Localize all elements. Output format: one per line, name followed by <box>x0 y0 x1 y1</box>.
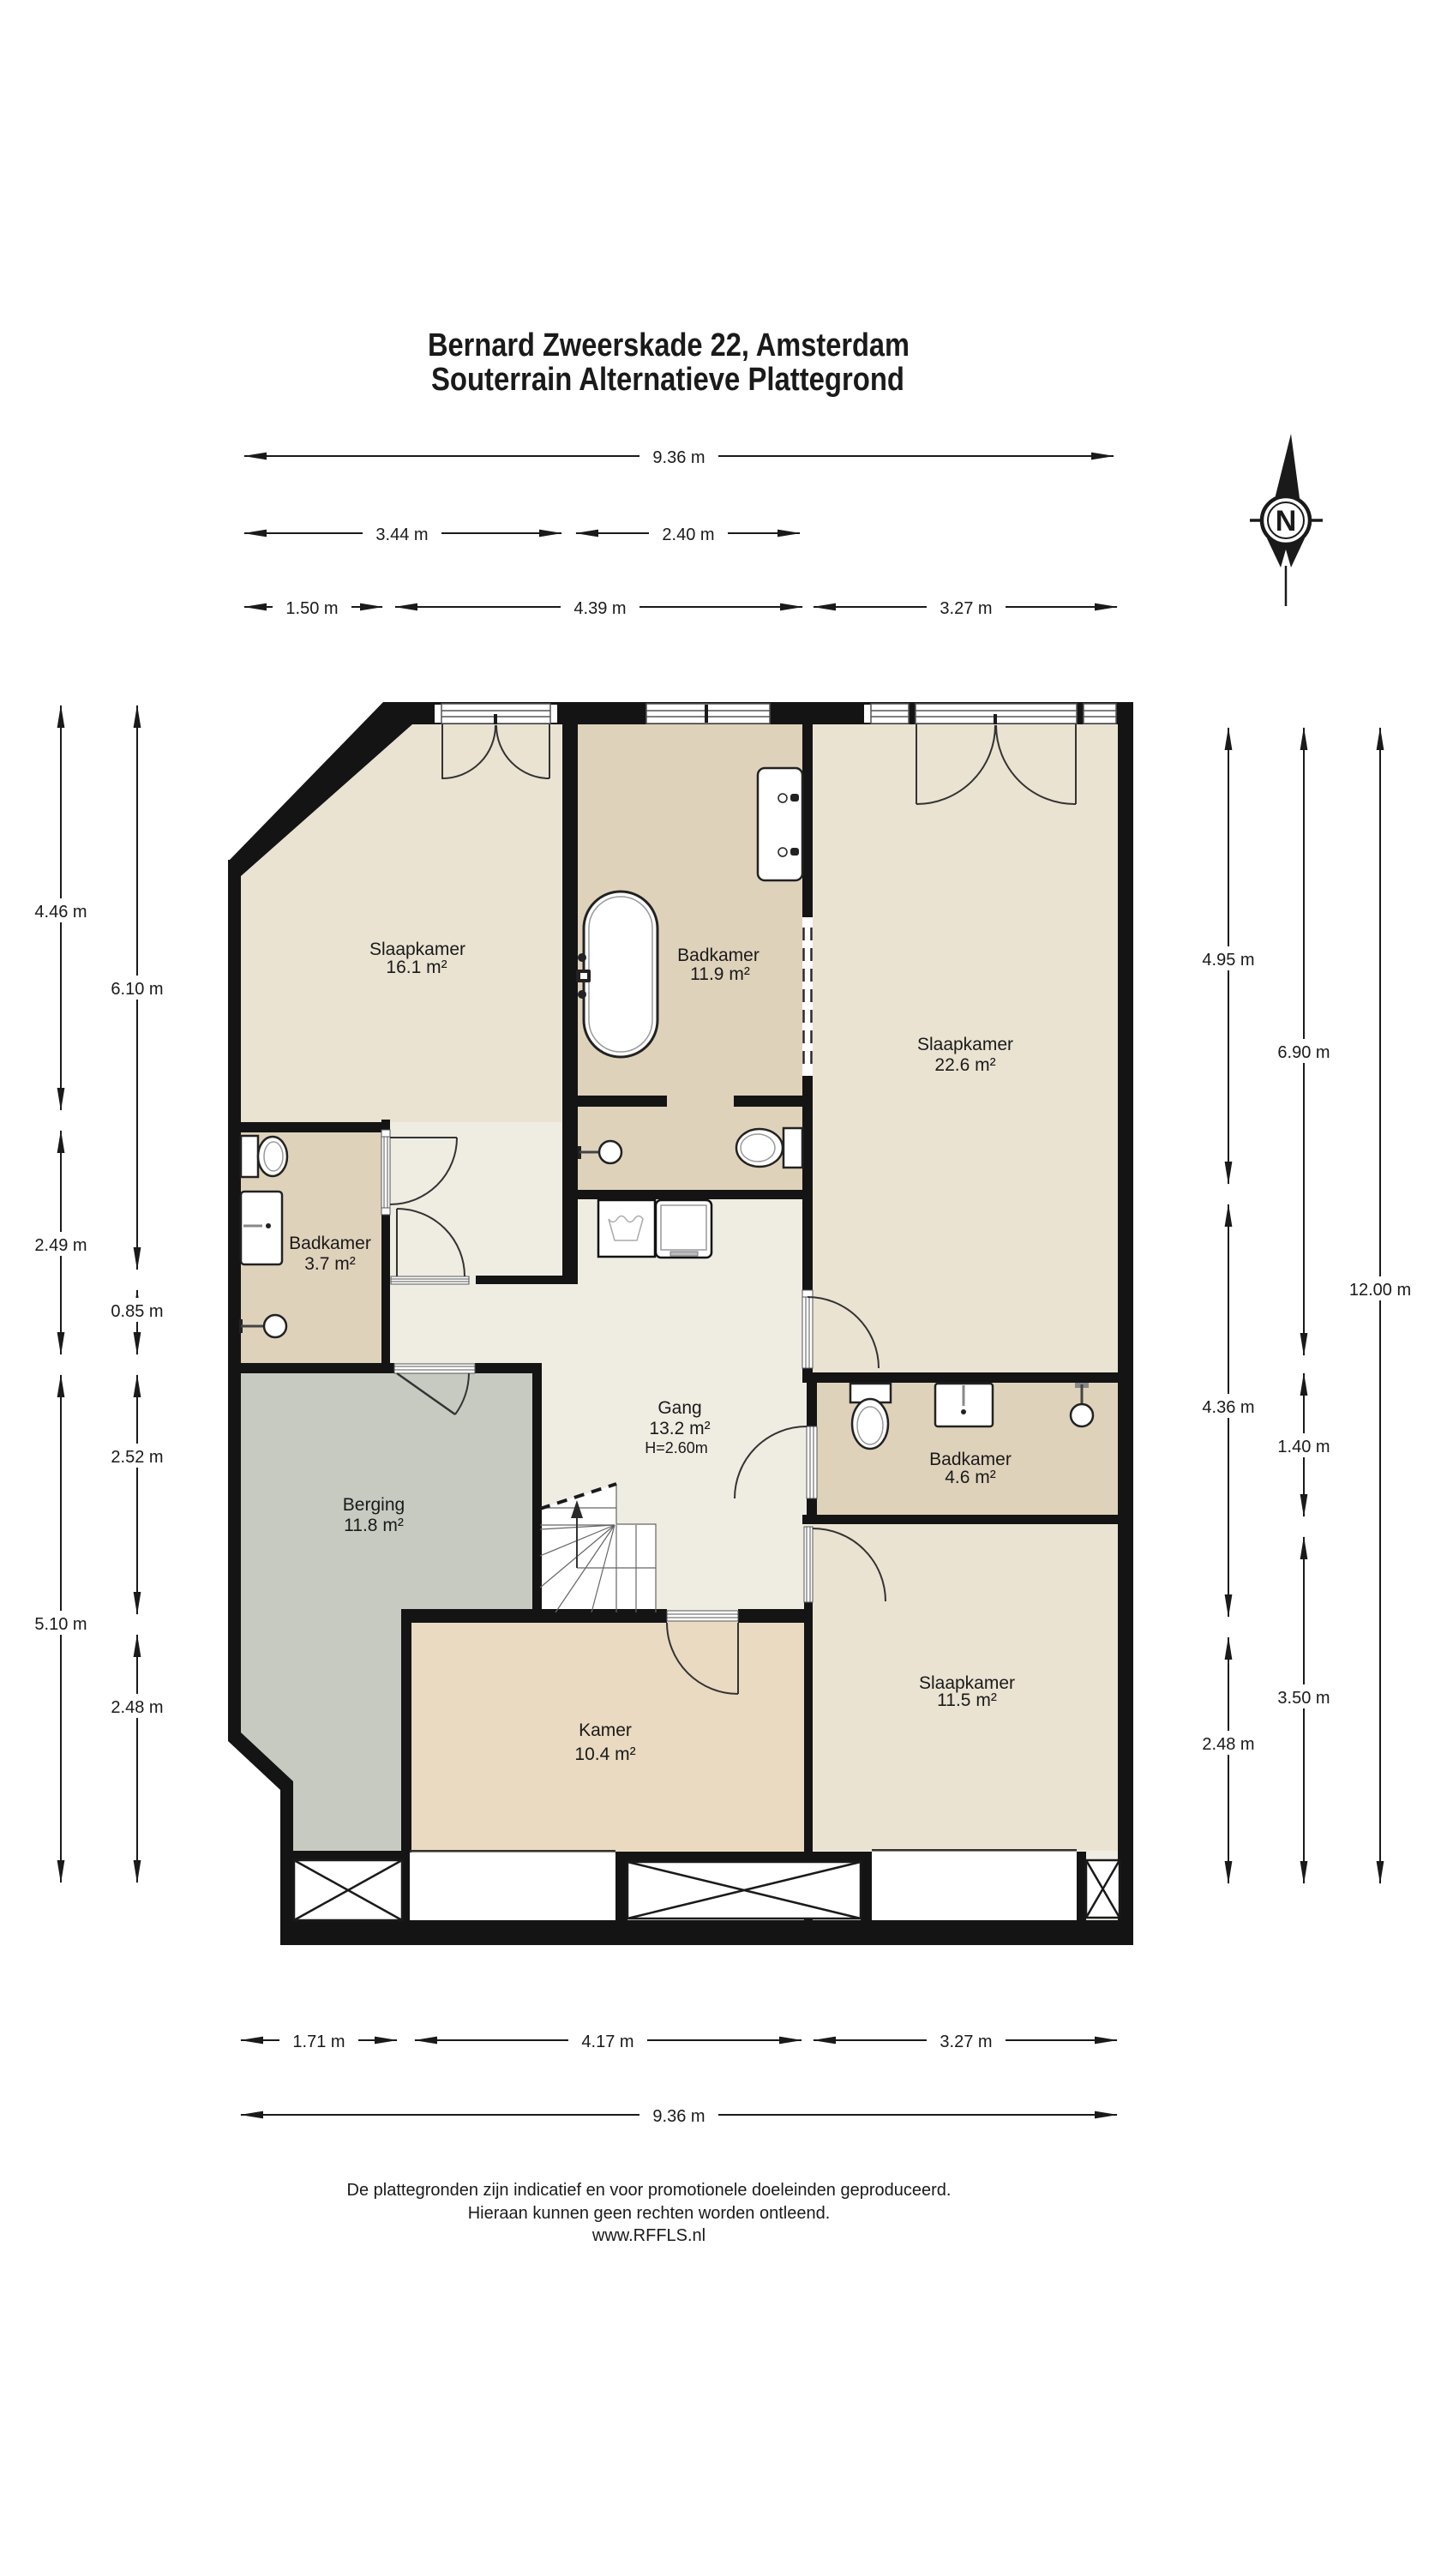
svg-text:2.40 m: 2.40 m <box>662 525 714 544</box>
svg-text:Bernard Zweerskade 22, Amsterd: Bernard Zweerskade 22, Amsterdam <box>428 327 910 363</box>
svg-text:11.9 m²: 11.9 m² <box>690 964 750 984</box>
svg-text:4.6 m²: 4.6 m² <box>945 1468 996 1487</box>
svg-text:1.40 m: 1.40 m <box>1277 1438 1330 1456</box>
svg-text:3.44 m: 3.44 m <box>375 525 428 544</box>
svg-text:De plattegronden zijn indicati: De plattegronden zijn indicatief en voor… <box>347 2181 952 2200</box>
svg-text:Badkamer: Badkamer <box>677 946 760 965</box>
svg-text:2.48 m: 2.48 m <box>111 1698 163 1717</box>
svg-text:www.RFFLS.nl: www.RFFLS.nl <box>591 2226 705 2245</box>
svg-text:10.4 m²: 10.4 m² <box>574 1744 635 1764</box>
svg-text:5.10 m: 5.10 m <box>34 1615 87 1634</box>
svg-text:Kamer: Kamer <box>579 1720 632 1740</box>
svg-text:2.48 m: 2.48 m <box>1202 1735 1254 1754</box>
svg-text:3.27 m: 3.27 m <box>940 599 992 618</box>
svg-text:9.36 m: 9.36 m <box>652 2107 705 2126</box>
svg-text:1.71 m: 1.71 m <box>292 2033 345 2051</box>
svg-text:Badkamer: Badkamer <box>289 1234 371 1253</box>
svg-text:4.39 m: 4.39 m <box>573 599 626 618</box>
svg-text:6.10 m: 6.10 m <box>111 980 163 999</box>
svg-text:4.95 m: 4.95 m <box>1202 951 1254 970</box>
svg-text:Slaapkamer: Slaapkamer <box>369 940 465 959</box>
svg-text:12.00 m: 12.00 m <box>1349 1281 1411 1300</box>
svg-text:22.6 m²: 22.6 m² <box>934 1055 995 1075</box>
svg-text:1.50 m: 1.50 m <box>285 599 338 618</box>
svg-text:H=2.60m: H=2.60m <box>645 1439 708 1456</box>
svg-text:16.1 m²: 16.1 m² <box>386 958 447 977</box>
svg-text:6.90 m: 6.90 m <box>1277 1043 1330 1062</box>
svg-text:4.36 m: 4.36 m <box>1202 1398 1254 1417</box>
svg-text:2.49 m: 2.49 m <box>34 1236 87 1255</box>
svg-text:3.7 m²: 3.7 m² <box>304 1254 356 1274</box>
svg-text:Gang: Gang <box>657 1398 701 1418</box>
svg-text:0.85 m: 0.85 m <box>111 1302 163 1321</box>
svg-text:4.46 m: 4.46 m <box>34 903 87 922</box>
svg-text:3.50 m: 3.50 m <box>1277 1689 1330 1708</box>
svg-text:11.8 m²: 11.8 m² <box>344 1516 404 1535</box>
svg-text:11.5 m²: 11.5 m² <box>937 1690 997 1710</box>
svg-text:3.27 m: 3.27 m <box>940 2033 992 2051</box>
svg-text:N: N <box>1276 505 1297 537</box>
svg-text:4.17 m: 4.17 m <box>581 2033 633 2051</box>
svg-text:Hieraan kunnen geen rechten wo: Hieraan kunnen geen rechten worden ontle… <box>468 2204 831 2223</box>
svg-text:Badkamer: Badkamer <box>929 1450 1012 1469</box>
svg-text:13.2 m²: 13.2 m² <box>649 1419 710 1438</box>
svg-text:Slaapkamer: Slaapkamer <box>917 1035 1013 1054</box>
svg-text:Berging: Berging <box>343 1495 405 1515</box>
svg-text:2.52 m: 2.52 m <box>111 1448 163 1467</box>
svg-text:Souterrain Alternatieve Platte: Souterrain Alternatieve Plattegrond <box>431 362 904 398</box>
svg-text:9.36 m: 9.36 m <box>652 448 705 467</box>
